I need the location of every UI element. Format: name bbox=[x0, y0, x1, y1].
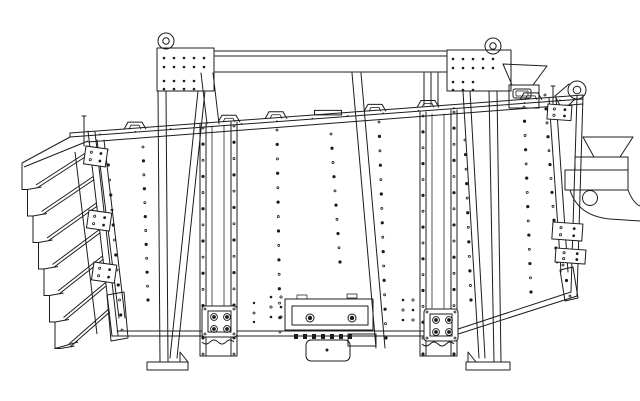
flange-bolt bbox=[225, 327, 229, 331]
chute-tooth bbox=[28, 190, 34, 217]
bolt-dot bbox=[276, 143, 279, 146]
bolt-dot bbox=[121, 329, 123, 331]
cluster-bolt bbox=[402, 309, 404, 311]
bolt-dot bbox=[117, 283, 120, 286]
chute-diagonal bbox=[53, 230, 101, 268]
cluster-bolt bbox=[280, 296, 282, 298]
bolt-dot bbox=[452, 223, 455, 226]
rim-dot bbox=[135, 131, 137, 133]
flange-bolt bbox=[212, 315, 216, 319]
bolt-dot bbox=[422, 178, 424, 180]
bolt-dot bbox=[466, 197, 468, 199]
bolt-dot bbox=[421, 225, 424, 228]
bolt-dot bbox=[145, 243, 148, 246]
bolt-dot bbox=[107, 163, 110, 166]
bolt-dot bbox=[548, 150, 550, 152]
chute-diagonal bbox=[64, 283, 107, 321]
plate-bolt bbox=[163, 80, 166, 83]
bolt-dot bbox=[330, 147, 333, 150]
right-rail-inner-lines bbox=[432, 114, 444, 308]
chute-diagonal bbox=[69, 309, 110, 347]
left-foot-plate bbox=[147, 362, 188, 370]
bolt-dot bbox=[144, 215, 147, 218]
plate-bolt bbox=[183, 66, 186, 69]
left-end-pin bbox=[82, 116, 86, 146]
bolt-dot bbox=[379, 164, 382, 167]
bolt-dot bbox=[385, 323, 387, 325]
plate-bolt bbox=[173, 88, 176, 91]
rim-dot bbox=[347, 115, 349, 117]
bolt-dot bbox=[548, 163, 551, 166]
bolt-dot bbox=[384, 336, 387, 339]
bolt-dot bbox=[382, 236, 384, 238]
chute-tooth bbox=[39, 243, 45, 270]
chute-diagonal bbox=[42, 177, 95, 215]
bolt-dot bbox=[276, 129, 278, 131]
bolt-dot bbox=[421, 194, 424, 197]
bolt-dot bbox=[277, 187, 279, 189]
left-discharge-chute-stack bbox=[22, 137, 110, 349]
panel-bolt bbox=[308, 316, 312, 320]
bolt-dot bbox=[142, 159, 145, 162]
bolt-dot bbox=[565, 279, 568, 282]
bolt-dot bbox=[276, 201, 279, 204]
bolt-dot bbox=[528, 262, 531, 265]
plate-bolt bbox=[203, 66, 206, 69]
rim-dot bbox=[205, 126, 207, 128]
bolt-dot bbox=[467, 240, 470, 243]
bolt-dot bbox=[233, 125, 235, 127]
bolt-dot bbox=[453, 176, 455, 178]
right-end-clamp-2-plate bbox=[552, 222, 583, 241]
plate-bolt bbox=[183, 88, 186, 91]
chute-tooth bbox=[44, 269, 50, 296]
rim-dot bbox=[453, 107, 455, 109]
bolt-dot bbox=[453, 111, 455, 113]
bolt-dot bbox=[109, 193, 112, 196]
bolt-dot bbox=[381, 207, 383, 209]
chute-tooth bbox=[55, 322, 61, 349]
plate-bolt bbox=[472, 67, 475, 70]
bolt-dot bbox=[381, 221, 384, 224]
bolt-dot bbox=[380, 179, 382, 181]
left-end-clamp-3-plate bbox=[91, 262, 116, 283]
bolt-dot bbox=[202, 288, 204, 290]
rail-break-line bbox=[202, 340, 234, 344]
flange-bolt bbox=[447, 330, 451, 334]
right-end-clamp-3-plate bbox=[555, 248, 586, 264]
plate-bolt bbox=[462, 89, 465, 92]
motor-bolt bbox=[339, 334, 343, 339]
bolt-dot bbox=[546, 135, 549, 138]
bolt-dot bbox=[527, 233, 530, 236]
chute-tooth bbox=[33, 216, 39, 243]
motor-dot bbox=[326, 349, 329, 352]
bolt-dot bbox=[336, 218, 338, 220]
panel-bolt bbox=[350, 316, 354, 320]
bolt-dot bbox=[526, 191, 528, 193]
bolt-dot bbox=[452, 352, 455, 355]
bolt-dot bbox=[552, 205, 554, 207]
plate-bolt bbox=[462, 58, 465, 61]
bolt-dot bbox=[453, 305, 455, 307]
bolt-dot bbox=[452, 159, 455, 162]
plate-bolt bbox=[193, 66, 196, 69]
bolt-dot bbox=[452, 288, 455, 291]
bolt-dot bbox=[330, 133, 332, 135]
bolt-dot bbox=[422, 242, 424, 244]
bolt-dot bbox=[332, 161, 334, 163]
bolt-dot bbox=[469, 284, 471, 286]
bolt-dot bbox=[526, 205, 529, 208]
bolt-dot bbox=[143, 187, 146, 190]
bolt-dot bbox=[109, 179, 111, 181]
cluster-bolt bbox=[412, 299, 414, 301]
bolt-dot bbox=[233, 288, 235, 290]
cluster-bolt bbox=[412, 319, 414, 321]
chute-lip bbox=[50, 293, 64, 296]
bolt-dot bbox=[529, 290, 532, 293]
motor-bolt bbox=[348, 334, 352, 339]
bolt-dot bbox=[422, 147, 424, 149]
bolt-dot bbox=[201, 272, 204, 275]
bolt-dot bbox=[422, 305, 424, 307]
bolt-dot bbox=[201, 207, 204, 210]
lifting-eye-left-hole bbox=[163, 38, 169, 44]
bolt-dot bbox=[465, 168, 467, 170]
bolt-dot bbox=[525, 177, 528, 180]
bolt-dot bbox=[524, 134, 526, 136]
bolt-dot bbox=[278, 287, 281, 290]
bolt-dot bbox=[233, 158, 235, 160]
bolt-dot bbox=[552, 219, 555, 222]
bolt-dot bbox=[278, 244, 280, 246]
bolt-dot bbox=[338, 247, 340, 249]
bolt-dot bbox=[569, 295, 571, 297]
bolt-dot bbox=[379, 150, 381, 152]
bolt-dot bbox=[119, 313, 122, 316]
bolt-dot bbox=[550, 191, 553, 194]
bolt-dot bbox=[546, 122, 548, 124]
bolt-dot bbox=[380, 192, 383, 195]
plate-bolt bbox=[173, 66, 176, 69]
bolt-dot bbox=[277, 216, 279, 218]
bolt-dot bbox=[465, 182, 468, 185]
chute-lip bbox=[28, 187, 42, 190]
left-foot-gusset bbox=[180, 352, 188, 362]
rail-break-line bbox=[422, 342, 454, 346]
plate-bolt bbox=[173, 57, 176, 60]
rim-dot bbox=[418, 110, 420, 112]
flange-bolt bbox=[434, 318, 438, 322]
left-rail-inner-lines bbox=[212, 126, 224, 306]
bolt-dot bbox=[114, 239, 116, 241]
bolt-dot bbox=[528, 248, 530, 250]
bolt-dot bbox=[146, 257, 148, 259]
left-front-leg bbox=[158, 91, 168, 362]
hopper-handle-inner bbox=[516, 91, 528, 96]
bolt-dot bbox=[232, 238, 235, 241]
motor-bolt bbox=[330, 334, 334, 339]
feed-inlet-hopper bbox=[503, 64, 547, 108]
bolt-dot bbox=[143, 174, 145, 176]
plate-bolt bbox=[492, 58, 495, 61]
chute-top-cover bbox=[22, 137, 88, 167]
bolt-dot bbox=[201, 143, 204, 146]
bolt-dot bbox=[202, 192, 204, 194]
bolt-dot bbox=[233, 353, 235, 355]
plate-bolt bbox=[482, 67, 485, 70]
plate-bolt bbox=[163, 66, 166, 69]
plate-bolt bbox=[452, 58, 455, 61]
rim-clamp-handles bbox=[124, 93, 542, 129]
plate-bolt bbox=[183, 57, 186, 60]
bolt-dot bbox=[453, 240, 455, 242]
plate-bolt bbox=[472, 58, 475, 61]
left-end-clamp-2 bbox=[86, 210, 111, 231]
bolt-dot bbox=[332, 175, 335, 178]
panel-tab bbox=[297, 295, 307, 299]
plate-bolt bbox=[163, 57, 166, 60]
chute-diagonal bbox=[36, 150, 91, 188]
panel-inner bbox=[292, 306, 368, 325]
lifting-eye-corner-hole bbox=[573, 86, 581, 94]
flange-bolt bbox=[434, 330, 438, 334]
bolt-dot bbox=[452, 191, 455, 194]
bolt-dot bbox=[334, 204, 337, 207]
plate-bolt bbox=[452, 89, 455, 92]
plate-bolt bbox=[462, 67, 465, 70]
bolt-dot bbox=[233, 190, 235, 192]
panel-tab bbox=[347, 294, 357, 298]
bolt-dot bbox=[277, 229, 280, 232]
bolt-dot bbox=[145, 271, 148, 274]
cluster-bolt bbox=[253, 302, 255, 304]
plate-bolt bbox=[193, 57, 196, 60]
bolt-dot bbox=[114, 253, 117, 256]
gyratory-sifter-drawing bbox=[0, 0, 640, 401]
rim-dot bbox=[312, 118, 314, 120]
bolt-dot bbox=[527, 220, 529, 222]
bolt-dot bbox=[469, 298, 472, 301]
cluster-bolt bbox=[253, 321, 255, 323]
rim-dot bbox=[170, 128, 172, 130]
bolt-dot bbox=[202, 353, 204, 355]
bolt-dot bbox=[232, 206, 235, 209]
bolt-dot bbox=[233, 255, 235, 257]
plate-bolt bbox=[482, 58, 485, 61]
top-rim-line bbox=[88, 104, 583, 142]
plate-bolt bbox=[193, 80, 196, 83]
left-end-clamp-1 bbox=[83, 146, 107, 167]
bolt-dot bbox=[550, 178, 552, 180]
motor-bolt bbox=[294, 334, 298, 339]
rim-dot bbox=[488, 105, 490, 107]
top-rim-line bbox=[70, 95, 583, 133]
cluster-bolt bbox=[402, 299, 405, 302]
plate-bolt bbox=[452, 67, 455, 70]
left-gusset-plate bbox=[157, 48, 214, 91]
bolt-dot bbox=[279, 331, 281, 333]
cluster-bolt bbox=[280, 306, 283, 309]
bolt-dot bbox=[232, 141, 235, 144]
bolt-dot bbox=[421, 352, 424, 355]
bolt-dot bbox=[468, 269, 471, 272]
right-end-clamp-3 bbox=[555, 248, 586, 264]
bracket-hole bbox=[583, 191, 598, 206]
rim-dot bbox=[99, 133, 101, 135]
bolt-dot bbox=[452, 127, 455, 130]
hopper-funnel bbox=[503, 64, 547, 85]
bolt-dot bbox=[523, 120, 526, 123]
left-end-clamp-3 bbox=[91, 262, 116, 283]
plate-bolt bbox=[193, 88, 196, 91]
right-end-edge bbox=[571, 95, 583, 296]
chute-lip bbox=[33, 214, 47, 217]
bolt-dot bbox=[336, 232, 339, 235]
bottom-edge bbox=[112, 331, 452, 336]
flange-bolt bbox=[225, 315, 229, 319]
cluster-bolt bbox=[412, 309, 415, 312]
rim-dot bbox=[382, 113, 384, 115]
right-foot-plate bbox=[466, 362, 510, 370]
discharge-funnel bbox=[583, 137, 633, 157]
chute-lip bbox=[39, 240, 53, 243]
bolt-dot bbox=[147, 285, 149, 287]
bolt-dot bbox=[378, 121, 380, 123]
bolt-dot bbox=[453, 272, 455, 274]
chute-tooth bbox=[50, 296, 56, 323]
technical-drawing-canvas bbox=[0, 0, 640, 401]
bolt-dot bbox=[421, 162, 424, 165]
bolt-dot bbox=[278, 273, 280, 275]
right-foot-gusset bbox=[468, 352, 476, 362]
bolt-dot bbox=[382, 250, 385, 253]
bottom-access-panel bbox=[285, 294, 373, 330]
bolt-dot bbox=[144, 202, 146, 204]
right-rear-leg bbox=[463, 91, 485, 358]
rim-dot bbox=[559, 99, 561, 101]
bolt-dot bbox=[464, 153, 467, 156]
plate-bolt bbox=[492, 67, 495, 70]
plate-bolt bbox=[173, 80, 176, 83]
bolt-dot bbox=[146, 298, 149, 301]
lifting-eye-right-hole bbox=[490, 43, 496, 49]
top-rim-line bbox=[70, 99, 583, 137]
bolt-dot bbox=[466, 211, 469, 214]
bolt-dot bbox=[467, 226, 469, 228]
bolt-clusters bbox=[253, 296, 415, 323]
discharge-duct-upper bbox=[575, 157, 628, 170]
rim-dot bbox=[241, 123, 243, 125]
lifting-eye-right-outer bbox=[485, 38, 501, 54]
discharge-bracket-curve bbox=[628, 190, 640, 206]
motor-bolt bbox=[312, 334, 316, 339]
cluster-bolt bbox=[270, 296, 273, 299]
plate-bolt bbox=[472, 89, 475, 92]
chute-lip bbox=[44, 267, 58, 270]
plate-bolt bbox=[183, 80, 186, 83]
bolt-dot bbox=[233, 223, 235, 225]
motor-bolt bbox=[321, 334, 325, 339]
cluster-bolt bbox=[270, 306, 272, 308]
cluster-bolt bbox=[253, 312, 255, 314]
bolt-dot bbox=[468, 255, 470, 257]
bolt-dot bbox=[421, 130, 424, 133]
bolt-dot bbox=[202, 159, 204, 161]
lifting-eye-left-outer bbox=[158, 33, 174, 49]
top-cross-beam bbox=[215, 51, 447, 72]
chute-lip bbox=[55, 320, 69, 323]
plate-bolt bbox=[452, 81, 455, 84]
left-end-clamp-1-plate bbox=[83, 146, 107, 167]
bolt-dot bbox=[422, 210, 424, 212]
bolt-dot bbox=[276, 158, 278, 160]
bolt-dot bbox=[145, 229, 147, 231]
right-discharge-spout bbox=[565, 137, 640, 221]
bolt-dot bbox=[383, 265, 385, 267]
flange-bolt bbox=[447, 318, 451, 322]
bolt-dot bbox=[529, 277, 531, 279]
bolt-dot bbox=[383, 279, 386, 282]
bolt-dot bbox=[232, 173, 235, 176]
bolt-dot bbox=[544, 94, 546, 96]
cluster-bolt bbox=[270, 316, 273, 319]
right-end-clamp-1-plate bbox=[547, 104, 572, 121]
bolt-dot bbox=[453, 143, 455, 145]
rim-dot bbox=[276, 120, 278, 122]
right-end-clamp-1 bbox=[547, 104, 572, 121]
bolt-dot bbox=[524, 148, 527, 151]
bolt-dot bbox=[338, 260, 341, 263]
bolt-dot bbox=[422, 274, 424, 276]
bolt-dot bbox=[383, 308, 386, 311]
motor-bolt bbox=[303, 334, 307, 339]
left-far-leg bbox=[201, 73, 219, 124]
bolt-dot bbox=[421, 289, 424, 292]
bolt-dot bbox=[201, 175, 204, 178]
bolt-dot bbox=[202, 127, 204, 129]
bolt-dot bbox=[453, 208, 455, 210]
plate-bolt bbox=[462, 81, 465, 84]
bolt-dot bbox=[523, 106, 525, 108]
bolt-dot bbox=[421, 257, 424, 260]
bolt-dot bbox=[232, 271, 235, 274]
right-end-clamp-2 bbox=[552, 222, 583, 241]
right-gusset-plate bbox=[447, 50, 511, 91]
bolt-dot bbox=[277, 258, 280, 261]
bolt-dot bbox=[525, 163, 527, 165]
bolt-dot bbox=[334, 190, 336, 192]
bolt-dot bbox=[119, 299, 121, 301]
bolt-dot bbox=[202, 256, 204, 258]
bolt-dot bbox=[464, 139, 466, 141]
bolt-dot bbox=[142, 146, 144, 148]
plate-bolt bbox=[163, 88, 166, 91]
left-end-clamp-2-plate bbox=[86, 210, 111, 231]
rim-dot bbox=[524, 102, 526, 104]
plate-bolt bbox=[203, 57, 206, 60]
bolt-dot bbox=[384, 294, 386, 296]
bolt-dot bbox=[562, 264, 564, 266]
flange-bolt bbox=[212, 327, 216, 331]
bolt-dot bbox=[279, 302, 281, 304]
bolt-dot bbox=[378, 135, 381, 138]
bolt-dot bbox=[452, 256, 455, 259]
bolt-dot bbox=[112, 223, 115, 226]
bolt-dot bbox=[202, 224, 204, 226]
plate-bolt bbox=[472, 81, 475, 84]
